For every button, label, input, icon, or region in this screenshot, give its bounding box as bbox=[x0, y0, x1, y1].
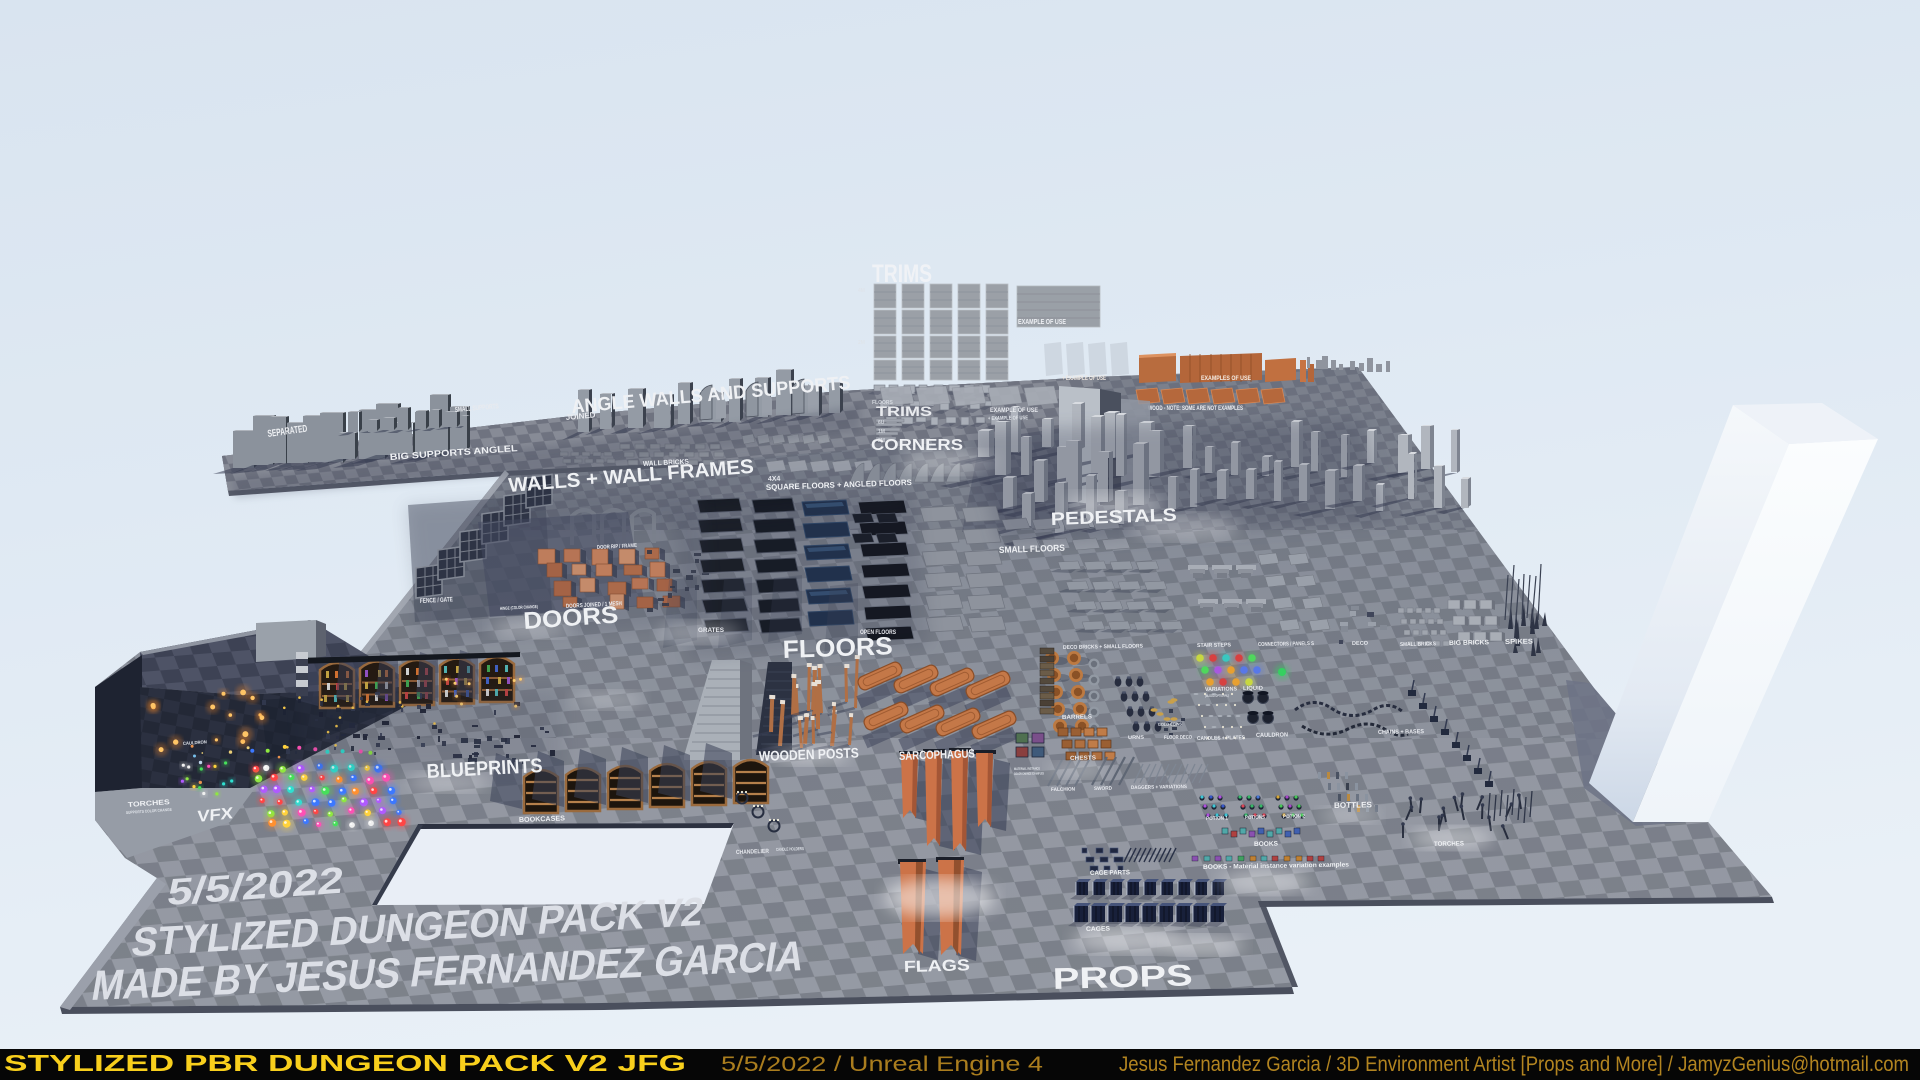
svg-text:TORCHES: TORCHES bbox=[1434, 840, 1465, 848]
svg-text:CORNERS: CORNERS bbox=[871, 437, 963, 454]
svg-text:CAGES: CAGES bbox=[1086, 926, 1111, 933]
svg-text:CAULDRON: CAULDRON bbox=[1256, 732, 1288, 739]
svg-text:GRATES: GRATES bbox=[698, 628, 724, 634]
svg-text:FLOORS: FLOORS bbox=[782, 632, 893, 664]
svg-text:FALCHION: FALCHION bbox=[1051, 787, 1075, 793]
svg-text:PROPS: PROPS bbox=[1052, 959, 1193, 996]
svg-text:(BLOOD OPTIONAL): (BLOOD OPTIONAL) bbox=[1205, 694, 1229, 698]
svg-text:VFX: VFX bbox=[197, 804, 234, 826]
svg-text:URNS: URNS bbox=[1128, 735, 1145, 741]
svg-text:EXAMPLE OF USE: EXAMPLE OF USE bbox=[1018, 319, 1066, 326]
svg-text:1M: 1M bbox=[878, 429, 885, 435]
svg-text:+ EXAMPLE OF USE: + EXAMPLE OF USE bbox=[1062, 376, 1106, 382]
svg-text:CHANDELIER: CHANDELIER bbox=[736, 849, 770, 856]
svg-text:4X4: 4X4 bbox=[768, 476, 781, 483]
svg-text:SWORD: SWORD bbox=[1094, 786, 1112, 792]
svg-text:CONNECTORS / PANELS S: CONNECTORS / PANELS S bbox=[1258, 641, 1314, 648]
svg-text:COLOR CHANGE EXAMPLES: COLOR CHANGE EXAMPLES bbox=[1014, 771, 1044, 776]
svg-text:Jesus Fernandez Garcia / 3D En: Jesus Fernandez Garcia / 3D Environment … bbox=[1119, 1053, 1909, 1076]
svg-text:BIG BRICKS: BIG BRICKS bbox=[1449, 639, 1490, 647]
svg-text:DECO: DECO bbox=[1352, 641, 1369, 647]
svg-text:STYLIZED PBR DUNGEON PACK V2 J: STYLIZED PBR DUNGEON PACK V2 JFG bbox=[4, 1050, 686, 1076]
svg-text:6U: 6U bbox=[878, 420, 885, 426]
svg-text:FLOORS: FLOORS bbox=[872, 400, 893, 406]
svg-text:POTION 1: POTION 1 bbox=[1206, 816, 1228, 822]
svg-text:CHAINS + BASES: CHAINS + BASES bbox=[1378, 729, 1424, 736]
svg-text:POTIONS: POTIONS bbox=[1245, 815, 1266, 821]
svg-text:OPEN FLOORS: OPEN FLOORS bbox=[860, 630, 896, 636]
svg-text:FLAGS: FLAGS bbox=[904, 957, 971, 976]
svg-text:SMALL BRICKS: SMALL BRICKS bbox=[1400, 641, 1436, 648]
svg-text:BOOKS: BOOKS bbox=[1254, 841, 1279, 848]
svg-text:2M: 2M bbox=[858, 340, 865, 346]
svg-text:EXAMPLES OF USE: EXAMPLES OF USE bbox=[1201, 375, 1252, 382]
svg-text:EXAMPLE OF USE: EXAMPLE OF USE bbox=[990, 407, 1039, 414]
svg-text:MATERIAL INSTANCE: MATERIAL INSTANCE bbox=[1014, 767, 1041, 771]
svg-text:CAGE PARTS: CAGE PARTS bbox=[1090, 869, 1131, 877]
svg-text:STAIR STEPS: STAIR STEPS bbox=[1197, 642, 1231, 649]
svg-text:SARCOPHAGUS: SARCOPHAGUS bbox=[899, 746, 975, 763]
svg-text:+ EXAMPLE OF USE: + EXAMPLE OF USE bbox=[988, 415, 1028, 422]
svg-text:CANDLE HOLDERS: CANDLE HOLDERS bbox=[776, 846, 804, 852]
svg-text:VARIATIONS: VARIATIONS bbox=[1205, 686, 1237, 693]
svg-text:CANDLES + PLATES: CANDLES + PLATES bbox=[1197, 735, 1245, 742]
svg-text:BOTTLES: BOTTLES bbox=[1334, 800, 1373, 810]
svg-text:SPIKES: SPIKES bbox=[1505, 639, 1533, 646]
svg-text:POTION 2: POTION 2 bbox=[1283, 814, 1305, 820]
svg-text:DAGGERS + VARIATIONS: DAGGERS + VARIATIONS bbox=[1131, 784, 1188, 791]
svg-text:WOOD - NOTE: SOME ARE NOT EXAM: WOOD - NOTE: SOME ARE NOT EXAMPLES bbox=[1148, 406, 1243, 412]
svg-text:FLOOR DECO: FLOOR DECO bbox=[1164, 735, 1192, 741]
svg-text:GOLD COINS: GOLD COINS bbox=[1158, 722, 1182, 727]
svg-text:5/5/2022 / Unreal Engine 4: 5/5/2022 / Unreal Engine 4 bbox=[721, 1053, 1043, 1076]
svg-text:4M: 4M bbox=[858, 288, 865, 294]
svg-text:LIQUID: LIQUID bbox=[1243, 686, 1263, 692]
svg-text:CHESTS: CHESTS bbox=[1070, 756, 1096, 762]
svg-text:BARRELS: BARRELS bbox=[1062, 714, 1092, 721]
